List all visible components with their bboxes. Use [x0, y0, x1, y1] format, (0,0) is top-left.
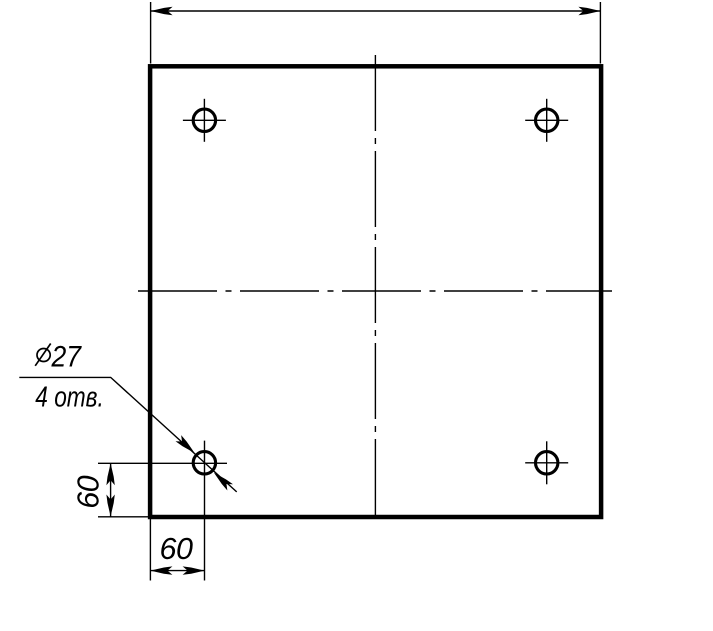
- svg-text:4 отв.: 4 отв.: [35, 381, 104, 413]
- svg-text:60: 60: [71, 475, 105, 508]
- svg-text:27: 27: [51, 341, 83, 374]
- svg-text:60: 60: [160, 532, 193, 566]
